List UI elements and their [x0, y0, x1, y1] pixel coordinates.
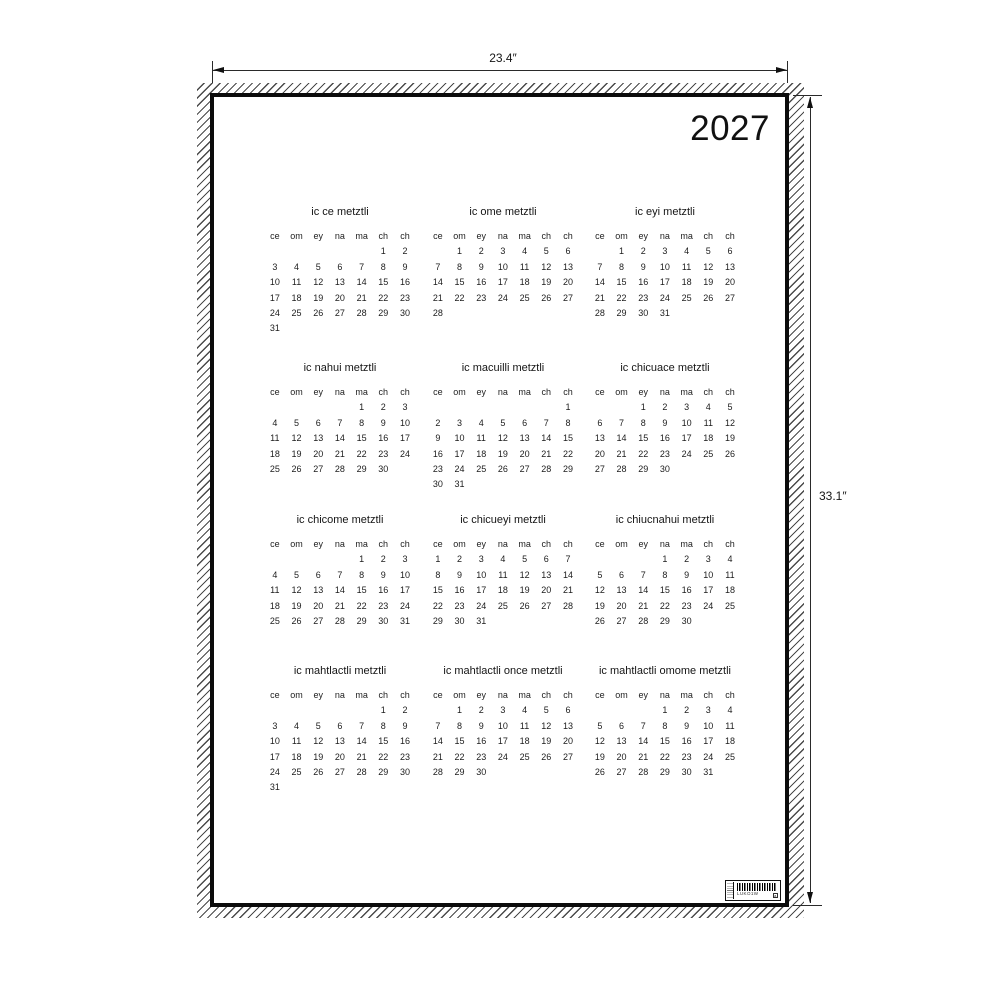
day-cell: 4 [514, 703, 536, 718]
day-cell: 5 [589, 719, 611, 734]
day-cell: 30 [449, 614, 471, 629]
day-cell: 22 [449, 291, 471, 306]
day-cell: 7 [351, 719, 373, 734]
day-cell: 25 [719, 750, 741, 765]
day-cell: 13 [611, 583, 633, 598]
empty-day-cell [449, 306, 471, 321]
day-of-week-header: na [492, 537, 514, 552]
day-cell: 9 [372, 416, 394, 431]
day-cell: 6 [307, 416, 329, 431]
day-cell: 8 [449, 260, 471, 275]
day-of-week-header: ch [535, 537, 557, 552]
day-of-week-header: ch [372, 229, 394, 244]
day-of-week-header: ma [351, 537, 373, 552]
month-day-grid: ceomeynamachch12345678910111213141516171… [589, 537, 741, 629]
day-cell: 14 [557, 568, 579, 583]
day-cell: 6 [514, 416, 536, 431]
empty-day-cell [535, 765, 557, 780]
day-cell: 27 [329, 765, 351, 780]
empty-day-cell [307, 321, 329, 336]
day-of-week-header: ch [557, 229, 579, 244]
day-of-week-header: ch [719, 537, 741, 552]
day-cell: 7 [535, 416, 557, 431]
day-cell: 14 [427, 734, 449, 749]
day-of-week-header: ma [351, 688, 373, 703]
empty-day-cell [589, 244, 611, 259]
day-cell: 14 [329, 431, 351, 446]
empty-day-cell [307, 780, 329, 795]
barcode-area: LUKO1W a [734, 881, 780, 900]
day-cell: 21 [329, 447, 351, 462]
month-block-8: ic chicueyi metztliceomeynamachch1234567… [427, 514, 579, 629]
product-mockup-canvas: 2027 ic ce metztliceomeynamachch12345678… [0, 0, 1000, 1000]
month-title: ic ce metztli [264, 206, 416, 219]
day-cell: 9 [394, 260, 416, 275]
day-cell: 30 [394, 765, 416, 780]
day-of-week-header: ey [470, 385, 492, 400]
month-title: ic eyi metztli [589, 206, 741, 219]
day-cell: 14 [329, 583, 351, 598]
day-cell: 25 [676, 291, 698, 306]
day-of-week-header: na [654, 537, 676, 552]
day-cell: 7 [329, 416, 351, 431]
day-cell: 6 [557, 244, 579, 259]
empty-day-cell [470, 477, 492, 492]
day-cell: 25 [492, 599, 514, 614]
day-cell: 8 [351, 416, 373, 431]
day-cell: 22 [372, 291, 394, 306]
day-of-week-header: ma [514, 385, 536, 400]
day-cell: 11 [697, 416, 719, 431]
day-cell: 10 [394, 416, 416, 431]
day-cell: 16 [632, 275, 654, 290]
day-cell: 6 [611, 568, 633, 583]
month-block-5: ic macuilli metztliceomeynamachch1234567… [427, 362, 579, 493]
empty-day-cell [697, 462, 719, 477]
day-cell: 16 [470, 734, 492, 749]
day-cell: 10 [697, 719, 719, 734]
day-cell: 23 [427, 462, 449, 477]
day-cell: 7 [427, 260, 449, 275]
day-of-week-header: ce [264, 688, 286, 703]
day-cell: 15 [372, 275, 394, 290]
day-cell: 13 [329, 734, 351, 749]
day-cell: 11 [264, 431, 286, 446]
day-cell: 11 [470, 431, 492, 446]
empty-day-cell [697, 614, 719, 629]
empty-day-cell [676, 306, 698, 321]
day-cell: 14 [351, 734, 373, 749]
day-cell: 24 [676, 447, 698, 462]
month-title: ic chicome metztli [264, 514, 416, 527]
day-cell: 19 [697, 275, 719, 290]
width-extension-tick-right [787, 61, 788, 83]
day-cell: 29 [449, 765, 471, 780]
empty-day-cell [492, 614, 514, 629]
day-cell: 29 [557, 462, 579, 477]
month-block-1: ic ce metztliceomeynamachch1234567891011… [264, 206, 416, 337]
day-cell: 16 [427, 447, 449, 462]
day-of-week-header: ce [427, 385, 449, 400]
height-arrowhead-bottom-icon [807, 892, 813, 903]
day-cell: 11 [492, 568, 514, 583]
day-of-week-header: om [611, 229, 633, 244]
day-cell: 2 [449, 552, 471, 567]
barcode-microprint [727, 882, 734, 899]
empty-day-cell [394, 321, 416, 336]
day-cell: 3 [697, 552, 719, 567]
day-of-week-header: ma [514, 537, 536, 552]
day-cell: 17 [654, 275, 676, 290]
day-cell: 16 [470, 275, 492, 290]
day-cell: 10 [470, 568, 492, 583]
day-cell: 22 [654, 750, 676, 765]
day-cell: 19 [307, 750, 329, 765]
day-cell: 30 [394, 306, 416, 321]
day-cell: 4 [492, 552, 514, 567]
day-of-week-header: ch [557, 537, 579, 552]
day-cell: 29 [372, 306, 394, 321]
day-of-week-header: ey [632, 688, 654, 703]
month-day-grid: ceomeynamachch12345678910111213141516171… [589, 688, 741, 780]
day-cell: 8 [449, 719, 471, 734]
day-cell: 5 [535, 703, 557, 718]
day-cell: 17 [264, 750, 286, 765]
day-cell: 12 [286, 583, 308, 598]
calendar-poster: 2027 ic ce metztliceomeynamachch12345678… [210, 93, 789, 907]
day-of-week-header: ch [697, 385, 719, 400]
day-cell: 2 [394, 244, 416, 259]
day-cell: 6 [329, 719, 351, 734]
day-cell: 24 [697, 750, 719, 765]
day-cell: 22 [632, 447, 654, 462]
day-cell: 1 [351, 400, 373, 415]
day-cell: 27 [514, 462, 536, 477]
empty-day-cell [286, 780, 308, 795]
day-cell: 9 [654, 416, 676, 431]
day-cell: 20 [535, 583, 557, 598]
day-of-week-header: ey [470, 688, 492, 703]
day-cell: 2 [676, 552, 698, 567]
day-cell: 28 [427, 306, 449, 321]
day-of-week-header: na [329, 688, 351, 703]
month-day-grid: ceomeynamachch12345678910111213141516171… [589, 385, 741, 477]
day-cell: 23 [449, 599, 471, 614]
day-cell: 19 [492, 447, 514, 462]
day-cell: 3 [264, 260, 286, 275]
empty-day-cell [632, 552, 654, 567]
day-cell: 11 [286, 734, 308, 749]
day-of-week-header: ch [719, 688, 741, 703]
day-cell: 5 [697, 244, 719, 259]
day-cell: 19 [589, 599, 611, 614]
day-cell: 20 [514, 447, 536, 462]
day-cell: 8 [427, 568, 449, 583]
day-cell: 4 [676, 244, 698, 259]
day-cell: 29 [632, 462, 654, 477]
day-cell: 26 [492, 462, 514, 477]
empty-day-cell [264, 552, 286, 567]
height-arrowhead-top-icon [807, 97, 813, 108]
day-cell: 9 [394, 719, 416, 734]
day-cell: 30 [427, 477, 449, 492]
day-cell: 9 [676, 719, 698, 734]
day-cell: 21 [351, 750, 373, 765]
day-cell: 12 [535, 260, 557, 275]
day-cell: 14 [589, 275, 611, 290]
day-cell: 12 [589, 583, 611, 598]
day-of-week-header: ch [535, 688, 557, 703]
day-of-week-header: ce [589, 537, 611, 552]
month-title: ic macuilli metztli [427, 362, 579, 375]
day-cell: 19 [535, 734, 557, 749]
day-of-week-header: om [286, 688, 308, 703]
day-of-week-header: ce [589, 385, 611, 400]
day-cell: 8 [351, 568, 373, 583]
day-cell: 26 [589, 614, 611, 629]
day-cell: 3 [492, 244, 514, 259]
day-cell: 18 [514, 275, 536, 290]
day-cell: 19 [589, 750, 611, 765]
empty-day-cell [286, 244, 308, 259]
day-cell: 2 [676, 703, 698, 718]
day-cell: 2 [394, 703, 416, 718]
empty-day-cell [307, 244, 329, 259]
day-cell: 4 [719, 552, 741, 567]
day-cell: 1 [632, 400, 654, 415]
day-cell: 9 [427, 431, 449, 446]
day-cell: 20 [557, 275, 579, 290]
day-of-week-header: ey [307, 385, 329, 400]
empty-day-cell [372, 780, 394, 795]
day-of-week-header: om [611, 537, 633, 552]
day-of-week-header: na [654, 688, 676, 703]
day-cell: 15 [611, 275, 633, 290]
day-cell: 18 [264, 599, 286, 614]
day-cell: 22 [654, 599, 676, 614]
day-cell: 7 [632, 719, 654, 734]
day-cell: 25 [514, 291, 536, 306]
day-cell: 7 [611, 416, 633, 431]
day-cell: 24 [492, 750, 514, 765]
day-cell: 16 [449, 583, 471, 598]
day-cell: 1 [654, 703, 676, 718]
day-of-week-header: om [449, 385, 471, 400]
day-of-week-header: ma [351, 385, 373, 400]
height-dimension-label: 33.1″ [816, 489, 850, 503]
day-cell: 20 [329, 750, 351, 765]
day-cell: 2 [372, 552, 394, 567]
day-cell: 25 [264, 462, 286, 477]
month-day-grid: ceomeynamachch12345678910111213141516171… [427, 385, 579, 493]
day-cell: 3 [449, 416, 471, 431]
day-cell: 31 [449, 477, 471, 492]
day-cell: 3 [394, 552, 416, 567]
month-block-3: ic eyi metztliceomeynamachch123456789101… [589, 206, 741, 321]
day-cell: 19 [514, 583, 536, 598]
day-cell: 30 [372, 462, 394, 477]
day-cell: 8 [372, 260, 394, 275]
day-of-week-header: ey [307, 537, 329, 552]
day-cell: 31 [264, 321, 286, 336]
day-of-week-header: om [286, 537, 308, 552]
empty-day-cell [611, 552, 633, 567]
day-cell: 15 [632, 431, 654, 446]
day-cell: 12 [697, 260, 719, 275]
day-cell: 10 [264, 734, 286, 749]
month-title: ic chiucnahui metztli [589, 514, 741, 527]
day-cell: 6 [557, 703, 579, 718]
day-cell: 20 [307, 447, 329, 462]
day-cell: 19 [307, 291, 329, 306]
day-of-week-header: ey [470, 229, 492, 244]
day-cell: 4 [286, 260, 308, 275]
day-cell: 31 [654, 306, 676, 321]
day-cell: 16 [394, 275, 416, 290]
day-cell: 21 [329, 599, 351, 614]
day-of-week-header: na [329, 385, 351, 400]
day-cell: 24 [470, 599, 492, 614]
empty-day-cell [329, 321, 351, 336]
day-cell: 13 [719, 260, 741, 275]
day-cell: 11 [264, 583, 286, 598]
month-title: ic chicueyi metztli [427, 514, 579, 527]
day-cell: 13 [557, 260, 579, 275]
month-day-grid: ceomeynamachch12345678910111213141516171… [264, 229, 416, 337]
empty-day-cell [470, 400, 492, 415]
day-cell: 16 [654, 431, 676, 446]
day-cell: 28 [611, 462, 633, 477]
day-cell: 31 [394, 614, 416, 629]
day-cell: 27 [557, 750, 579, 765]
empty-day-cell [307, 400, 329, 415]
empty-day-cell [697, 306, 719, 321]
height-dimension-line [810, 97, 811, 903]
empty-day-cell [449, 400, 471, 415]
day-cell: 3 [492, 703, 514, 718]
day-cell: 30 [676, 765, 698, 780]
day-of-week-header: ch [372, 385, 394, 400]
day-of-week-header: ma [514, 229, 536, 244]
empty-day-cell [264, 703, 286, 718]
day-cell: 25 [286, 765, 308, 780]
day-cell: 14 [351, 275, 373, 290]
day-cell: 10 [654, 260, 676, 275]
day-cell: 18 [286, 750, 308, 765]
day-cell: 21 [589, 291, 611, 306]
day-cell: 25 [286, 306, 308, 321]
empty-day-cell [589, 703, 611, 718]
day-cell: 11 [676, 260, 698, 275]
day-cell: 17 [470, 583, 492, 598]
day-cell: 18 [286, 291, 308, 306]
day-cell: 12 [535, 719, 557, 734]
day-cell: 30 [654, 462, 676, 477]
width-arrowhead-right-icon [776, 67, 787, 73]
day-cell: 9 [676, 568, 698, 583]
empty-day-cell [286, 400, 308, 415]
month-block-10: ic mahtlactli metztliceomeynamachch12345… [264, 665, 416, 796]
day-cell: 9 [632, 260, 654, 275]
day-cell: 3 [697, 703, 719, 718]
empty-day-cell [676, 462, 698, 477]
day-cell: 23 [676, 599, 698, 614]
day-cell: 15 [654, 734, 676, 749]
day-cell: 27 [535, 599, 557, 614]
day-cell: 21 [427, 750, 449, 765]
day-cell: 15 [351, 431, 373, 446]
day-cell: 1 [427, 552, 449, 567]
day-cell: 13 [611, 734, 633, 749]
month-day-grid: ceomeynamachch12345678910111213141516171… [427, 229, 579, 321]
month-block-2: ic ome metztliceomeynamachch123456789101… [427, 206, 579, 321]
day-of-week-header: na [654, 385, 676, 400]
day-cell: 4 [697, 400, 719, 415]
day-cell: 6 [589, 416, 611, 431]
day-cell: 15 [351, 583, 373, 598]
day-of-week-header: ey [632, 229, 654, 244]
empty-day-cell [286, 703, 308, 718]
month-day-grid: ceomeynamachch12345678910111213141516171… [264, 537, 416, 629]
day-cell: 22 [611, 291, 633, 306]
day-cell: 26 [719, 447, 741, 462]
month-block-11: ic mahtlactli once metztliceomeynamachch… [427, 665, 579, 780]
day-of-week-header: ey [307, 688, 329, 703]
day-cell: 13 [557, 719, 579, 734]
day-of-week-header: ey [632, 385, 654, 400]
day-cell: 6 [535, 552, 557, 567]
day-cell: 11 [514, 260, 536, 275]
day-of-week-header: ch [535, 385, 557, 400]
day-of-week-header: ma [676, 385, 698, 400]
day-of-week-header: om [286, 385, 308, 400]
day-cell: 17 [264, 291, 286, 306]
empty-day-cell [351, 703, 373, 718]
day-cell: 1 [557, 400, 579, 415]
empty-day-cell [514, 400, 536, 415]
day-cell: 26 [286, 614, 308, 629]
day-of-week-header: ce [264, 537, 286, 552]
day-cell: 5 [307, 260, 329, 275]
day-cell: 27 [307, 614, 329, 629]
month-title: ic mahtlactli metztli [264, 665, 416, 678]
empty-day-cell [514, 765, 536, 780]
day-cell: 5 [286, 568, 308, 583]
day-cell: 18 [719, 583, 741, 598]
height-extension-tick-bottom [793, 905, 822, 906]
width-arrowhead-left-icon [213, 67, 224, 73]
day-cell: 27 [611, 765, 633, 780]
day-cell: 1 [611, 244, 633, 259]
day-cell: 12 [286, 431, 308, 446]
day-cell: 26 [307, 765, 329, 780]
day-cell: 26 [589, 765, 611, 780]
day-cell: 5 [589, 568, 611, 583]
day-cell: 3 [654, 244, 676, 259]
day-cell: 30 [632, 306, 654, 321]
empty-day-cell [719, 614, 741, 629]
empty-day-cell [427, 400, 449, 415]
day-cell: 6 [719, 244, 741, 259]
day-cell: 28 [557, 599, 579, 614]
empty-day-cell [492, 477, 514, 492]
day-cell: 31 [470, 614, 492, 629]
day-cell: 21 [611, 447, 633, 462]
day-cell: 11 [719, 719, 741, 734]
day-cell: 24 [654, 291, 676, 306]
day-cell: 28 [427, 765, 449, 780]
day-cell: 12 [492, 431, 514, 446]
